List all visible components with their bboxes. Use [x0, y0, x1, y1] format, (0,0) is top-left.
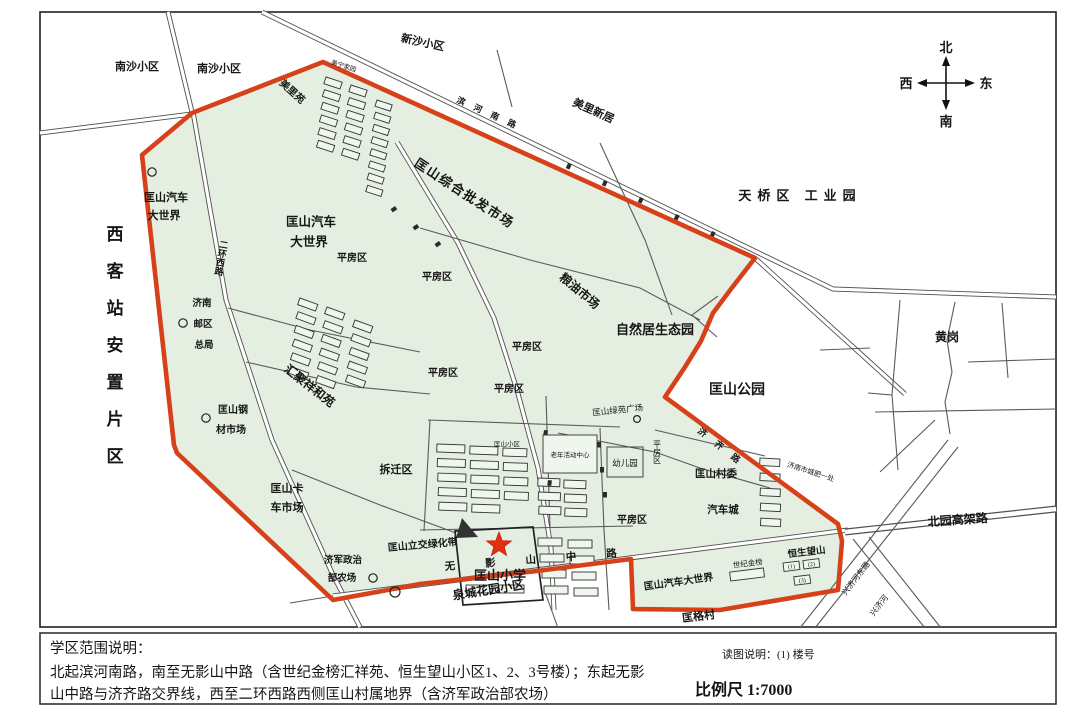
- road-tick: [603, 492, 607, 498]
- label-auto-world-big-2: 大世界: [290, 234, 328, 249]
- building: [574, 588, 598, 596]
- label-auto-city: 汽车城: [707, 503, 739, 516]
- label-kuangshan-park: 匡山公园: [709, 382, 765, 398]
- building-number: (1): [788, 563, 796, 571]
- building: [472, 504, 500, 513]
- building: [760, 488, 780, 497]
- legend-scale: 比例尺 1:7000: [695, 680, 792, 699]
- compass-north-label: 北: [939, 40, 952, 55]
- label-truck-market-1: 匡山卡: [271, 481, 304, 495]
- label-auto-world-big-1: 匡山汽车: [286, 214, 337, 229]
- building: [470, 461, 498, 470]
- building-number: (3): [798, 577, 806, 585]
- legend-note: 读图说明：(1) 楼号: [722, 647, 815, 661]
- building: [503, 463, 527, 472]
- label-nansha-2: 南沙小区: [197, 61, 241, 75]
- building: [438, 488, 466, 497]
- label-post-office-3: 总局: [194, 339, 213, 351]
- building: [503, 448, 527, 457]
- building: [760, 518, 780, 527]
- building: [437, 444, 465, 453]
- label-pingfang-6: 平房区: [617, 513, 647, 526]
- building: [568, 540, 592, 548]
- building: [437, 459, 465, 468]
- road-tick: [547, 480, 552, 486]
- label-ziranju-eco-park: 自然居生态园: [616, 322, 694, 337]
- label-pingfang-7: 平房区: [653, 440, 662, 464]
- label-truck-market-2: 车市场: [271, 500, 304, 514]
- label-jijun-farm-1: 济军政治: [324, 554, 363, 566]
- label-tianqiao-industrial: 天桥区 工业园: [738, 188, 861, 203]
- label-pingfang-3: 平房区: [512, 340, 542, 353]
- label-village-committee: 匡山村委: [695, 467, 737, 480]
- label-pingfang-1: 平房区: [337, 251, 367, 264]
- building: [504, 477, 528, 486]
- legend-line-2: 山中路与济齐路交界线，西至二环西路西侧匡山村属地界（含济军政治部农场）: [50, 685, 558, 703]
- building: [538, 492, 560, 501]
- building: [471, 490, 499, 499]
- building: [565, 508, 587, 517]
- building: [544, 586, 568, 594]
- label-demolition-area: 拆迁区: [380, 462, 413, 476]
- label-west-station-zone: 西客站安置片区: [104, 225, 125, 484]
- building: [760, 503, 780, 512]
- building: [471, 475, 499, 484]
- label-auto-world-small-2: 大世界: [148, 208, 181, 222]
- label-post-office-2: 邮区: [193, 318, 213, 330]
- label-senior-center: 老年活动中心: [551, 450, 591, 459]
- building: [539, 506, 561, 515]
- building: [504, 492, 528, 501]
- compass-south-label: 南: [939, 114, 952, 129]
- building: [439, 502, 467, 511]
- legend-box: 学区范围说明： 北起滨河南路，南至无影山中路（含世纪金榜汇祥苑、恒生望山小区1、…: [40, 633, 1056, 704]
- label-steel-market-1: 匡山钢: [218, 403, 248, 416]
- label-kindergarten: 幼儿园: [612, 458, 638, 468]
- school-district-map: (1) (2) (3) 南沙小区 南沙小区 美里苑 新沙小区 美里新居 美宁家园…: [0, 0, 1080, 716]
- building: [538, 538, 562, 546]
- building: [572, 572, 596, 580]
- building-number: (2): [808, 561, 816, 569]
- label-jijun-farm-2: 部农场: [328, 572, 357, 584]
- label-post-office-1: 济南: [192, 297, 212, 309]
- label-school-name: 匡山小学: [474, 568, 526, 583]
- label-auto-world-small-1: 匡山汽车: [144, 190, 188, 204]
- legend-line-1: 北起滨河南路，南至无影山中路（含世纪金榜汇祥苑、恒生望山小区1、2、3号楼）；东…: [50, 664, 645, 681]
- label-pingfang-4: 平房区: [428, 366, 458, 379]
- label-huanggang: 黄岗: [935, 329, 959, 344]
- label-pingfang-5: 平房区: [494, 382, 524, 395]
- legend-title: 学区范围说明：: [50, 640, 152, 657]
- label-steel-market-2: 材市场: [216, 423, 246, 436]
- label-kuangshan-community: 匡山小区: [494, 439, 521, 448]
- building: [564, 494, 586, 503]
- compass-east-label: 东: [979, 76, 992, 91]
- building: [438, 473, 466, 482]
- road-tick: [600, 467, 604, 473]
- building: [564, 480, 586, 489]
- building: [760, 458, 780, 467]
- map-canvas: (1) (2) (3) 南沙小区 南沙小区 美里苑 新沙小区 美里新居 美宁家园…: [0, 0, 1080, 716]
- compass-west-label: 西: [899, 76, 912, 91]
- label-pingfang-2: 平房区: [422, 270, 452, 283]
- label-nansha-1: 南沙小区: [115, 59, 159, 73]
- road-tick: [597, 442, 601, 448]
